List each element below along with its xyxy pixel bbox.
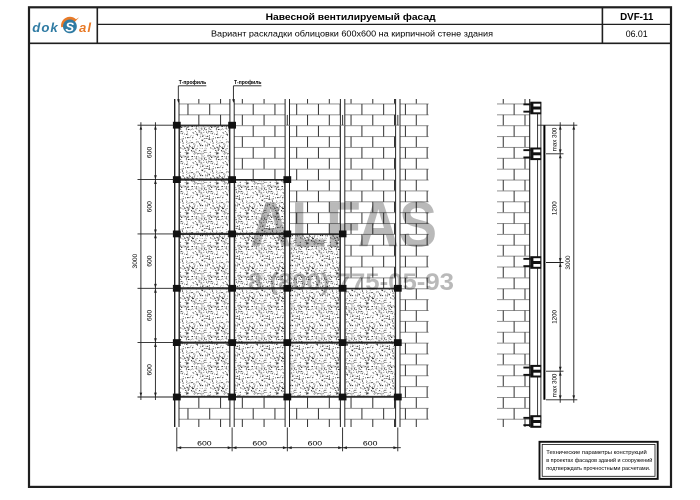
svg-text:в проектах фасадов зданий и со: в проектах фасадов зданий и сооружений (546, 457, 652, 464)
svg-text:600: 600 (146, 147, 153, 159)
svg-text:600: 600 (252, 441, 267, 448)
svg-text:Технические параметры конструк: Технические параметры конструкций (546, 449, 647, 456)
svg-text:1200: 1200 (551, 309, 558, 323)
svg-text:600: 600 (308, 441, 323, 448)
svg-text:Т-профиль: Т-профиль (234, 79, 262, 86)
svg-text:подтверждать прочностными расч: подтверждать прочностными расчетами. (546, 466, 650, 472)
svg-text:max 300: max 300 (551, 127, 558, 151)
svg-text:Навесной вентилируемый фасад: Навесной вентилируемый фасад (266, 11, 436, 22)
svg-text:3000: 3000 (132, 253, 139, 268)
svg-text:600: 600 (146, 364, 153, 376)
svg-text:600: 600 (197, 441, 212, 448)
svg-text:3000: 3000 (565, 255, 572, 270)
svg-text:1200: 1200 (551, 201, 558, 215)
svg-text:600: 600 (146, 201, 153, 213)
svg-text:Вариант раскладки облицовки 60: Вариант раскладки облицовки 600х600 на к… (211, 28, 493, 38)
svg-text:max 300: max 300 (551, 373, 558, 397)
svg-text:dok: dok (32, 20, 58, 35)
svg-text:S: S (65, 20, 74, 35)
svg-text:8 (800) 775-05-93: 8 (800) 775-05-93 (248, 269, 454, 296)
svg-text:600: 600 (146, 255, 153, 267)
svg-text:Т-профиль: Т-профиль (179, 79, 207, 86)
svg-text:06.01: 06.01 (626, 29, 648, 39)
svg-text:DVF-11: DVF-11 (620, 12, 654, 23)
svg-text:600: 600 (363, 441, 378, 448)
svg-text:ALFAS: ALFAS (250, 189, 437, 261)
svg-text:600: 600 (146, 310, 153, 322)
svg-text:al: al (79, 20, 92, 35)
